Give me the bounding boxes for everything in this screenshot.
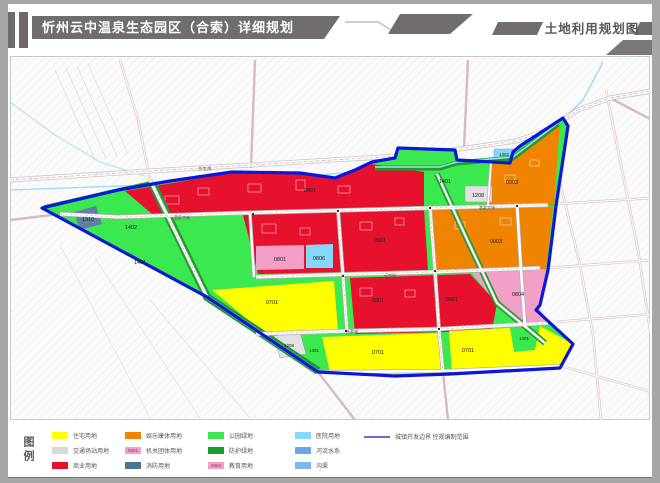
legend-chip-code: 0801: [125, 447, 141, 454]
header-deco-flag: [388, 14, 473, 34]
label-1402: 1402: [125, 225, 137, 231]
label-road-e: 合索街: [346, 328, 359, 335]
label-road-c-west: 温泉大街: [174, 214, 191, 221]
legend-item-river: 河流水系: [295, 443, 340, 458]
legend-item-fire: 消防用地: [125, 458, 182, 473]
legend-chip-transport-station: [52, 447, 68, 454]
label-0903-mid: 0903: [490, 239, 502, 245]
legend-boundary-label: 城镇开发边界 控规编制范围: [395, 432, 469, 441]
legend-label: 教育用地: [229, 461, 253, 470]
label-0801: 0801: [274, 257, 286, 263]
label-0903-top: 0903: [506, 180, 518, 186]
label-1302: 1302: [499, 152, 510, 157]
label-0901-north: 0901: [304, 188, 316, 194]
label-1401-east: 1401: [519, 336, 530, 341]
label-1401-mid: 1401: [309, 348, 320, 353]
legend-item-protective-green: 防护绿地: [208, 443, 253, 458]
label-1310: 1310: [82, 217, 94, 223]
legend-chip-education: 0804: [208, 462, 224, 469]
legend-label: 消防用地: [146, 461, 170, 470]
label-0806: 0806: [313, 256, 325, 262]
legend-item-park-green: 公园绿地: [208, 428, 253, 443]
page-title-text: 忻州云中温泉生态园区（合索）详细规划: [42, 20, 294, 35]
legend-chip-protective-green: [208, 447, 224, 454]
label-0804: 0804: [512, 292, 524, 298]
legend-item-entertainment: 娱乐康体用地: [125, 428, 182, 443]
legend-chip-hospital: [295, 432, 311, 439]
label-0701-east: 0701: [462, 348, 474, 354]
label-1401-west: 1401: [134, 260, 146, 266]
legend-boundary-line: [364, 436, 390, 438]
legend-label: 娱乐康体用地: [146, 431, 182, 440]
legend: 图例 住宅用地 交通场站用地 商业用地 娱乐康体用地 0801 机关团体用地 消: [8, 428, 652, 476]
legend-column-2: 娱乐康体用地 0801 机关团体用地 消防用地: [125, 428, 182, 473]
label-0701-mid: 0701: [372, 350, 384, 356]
legend-item-commercial: 商业用地: [52, 458, 109, 473]
label-road-c-east: 温泉大街: [479, 204, 496, 211]
legend-label: 医院用地: [316, 431, 340, 440]
legend-label: 沟渠: [316, 461, 328, 470]
page: { "header": { "title": "忻州云中温泉生态园区（合索）详细…: [0, 0, 660, 483]
legend-item-boundary: 城镇开发边界 控规编制范围: [364, 432, 469, 441]
legend-label: 防护绿地: [229, 446, 253, 455]
legend-column-1: 住宅用地 交通场站用地 商业用地: [52, 428, 109, 473]
label-road-d: 云中街: [384, 272, 397, 279]
legend-chip-ditch: [295, 462, 311, 469]
label-0901-south-w: 0901: [372, 298, 384, 304]
legend-item-education: 0804 教育用地: [208, 458, 253, 473]
legend-column-4: 医院用地 河流水系 沟渠: [295, 428, 340, 473]
map-sheet: 忻州云中温泉生态园区（合索）详细规划 土地利用规划图: [8, 4, 652, 478]
label-1208-north: 1208: [472, 193, 484, 199]
label-1208-south: 1208: [284, 343, 295, 348]
legend-item-residential: 住宅用地: [52, 428, 109, 443]
header-accent-bar-1: [8, 12, 15, 48]
legend-chip-code: 0804: [208, 462, 224, 469]
label-0901-center: 0901: [374, 238, 386, 244]
label-0701-west: 0701: [266, 300, 278, 306]
map-type-label: 土地利用规划图: [542, 18, 642, 37]
legend-title: 图例: [20, 436, 36, 472]
label-0901-south-e: 0901: [446, 297, 458, 303]
legend-label: 公园绿地: [229, 431, 253, 440]
legend-item-transport-station: 交通场站用地: [52, 443, 109, 458]
legend-label: 交通场站用地: [73, 446, 109, 455]
header-accent-bar-2: [19, 12, 28, 48]
label-1401-north: 1401: [439, 179, 451, 185]
label-road-highway: 忻五线: [199, 165, 212, 172]
legend-column-3: 公园绿地 防护绿地 0804 教育用地: [208, 428, 253, 473]
legend-item-government: 0801 机关团体用地: [125, 443, 182, 458]
legend-chip-residential: [52, 432, 68, 439]
legend-chip-river: [295, 447, 311, 454]
legend-label: 机关团体用地: [146, 446, 182, 455]
legend-chip-commercial: [52, 462, 68, 469]
legend-label: 住宅用地: [73, 431, 97, 440]
legend-chip-fire: [125, 462, 141, 469]
header-deco-band: [492, 22, 543, 35]
legend-chip-government: 0801: [125, 447, 141, 454]
legend-label: 河流水系: [316, 446, 340, 455]
legend-item-hospital: 医院用地: [295, 428, 340, 443]
legend-item-ditch: 沟渠: [295, 458, 340, 473]
header-deco-triangle: [606, 40, 652, 55]
legend-chip-entertainment: [125, 432, 141, 439]
page-title: 忻州云中温泉生态园区（合索）详细规划: [32, 16, 340, 39]
legend-chip-park-green: [208, 432, 224, 439]
legend-label: 商业用地: [73, 461, 97, 470]
land-use-map: 1310 1401 1402 0901 0901 0801 0806 1401 …: [10, 56, 650, 420]
